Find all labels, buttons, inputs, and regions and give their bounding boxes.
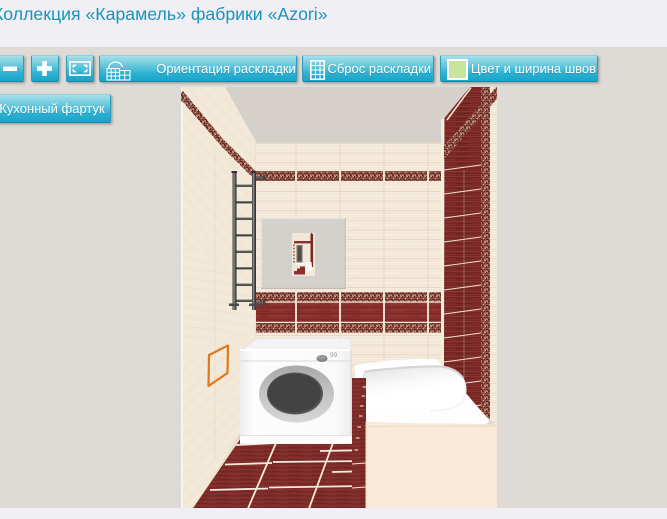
svg-text:99: 99 [330, 352, 338, 359]
